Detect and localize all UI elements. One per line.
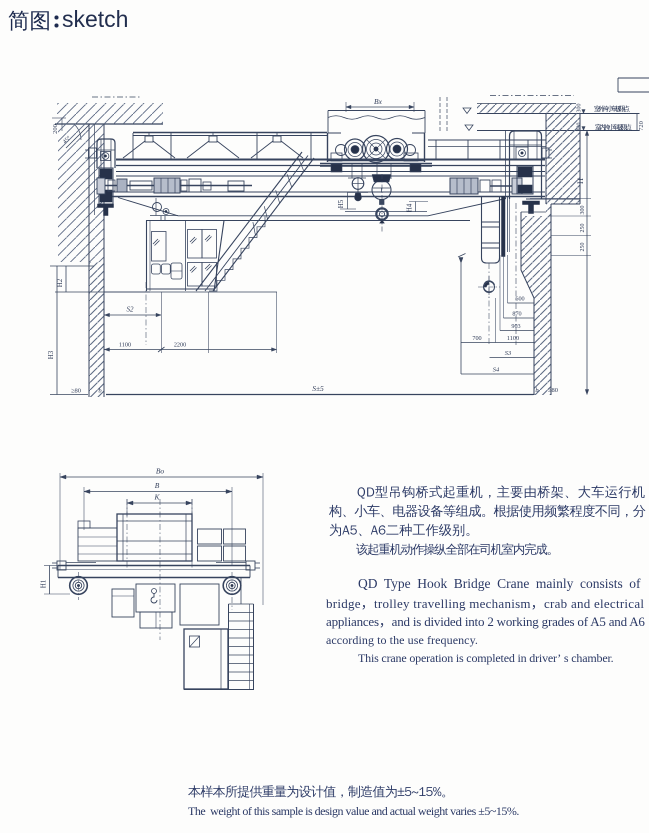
svg-text:1100: 1100 — [507, 335, 519, 342]
svg-text:200: 200 — [52, 124, 59, 134]
svg-text:H1: H1 — [40, 579, 48, 588]
svg-text:H5: H5 — [337, 199, 345, 208]
svg-text:K: K — [153, 493, 160, 502]
svg-text:600: 600 — [515, 296, 524, 303]
svg-text:H4: H4 — [406, 203, 414, 212]
svg-text:S±5: S±5 — [312, 384, 324, 393]
svg-text:700: 700 — [472, 335, 481, 342]
svg-text:H3: H3 — [47, 350, 55, 359]
svg-text:H: H — [575, 178, 585, 184]
svg-text:2200: 2200 — [174, 342, 186, 349]
svg-text:S3: S3 — [505, 350, 512, 357]
svg-text:≥80: ≥80 — [71, 388, 81, 395]
svg-text:903: 903 — [511, 323, 520, 330]
svg-text:Bx: Bx — [374, 97, 383, 106]
svg-text:S4: S4 — [493, 367, 500, 374]
svg-text:1100: 1100 — [119, 342, 131, 349]
svg-text:250: 250 — [580, 243, 586, 252]
svg-text:Bo: Bo — [156, 467, 165, 476]
svg-text:≥80: ≥80 — [548, 387, 558, 394]
svg-text:300: 300 — [580, 206, 586, 215]
svg-text:720: 720 — [638, 121, 645, 131]
svg-text:S2: S2 — [127, 306, 135, 314]
svg-text:250: 250 — [580, 224, 586, 233]
svg-text:870: 870 — [512, 311, 521, 318]
svg-text:B: B — [155, 481, 160, 490]
svg-text:300: 300 — [577, 104, 583, 113]
